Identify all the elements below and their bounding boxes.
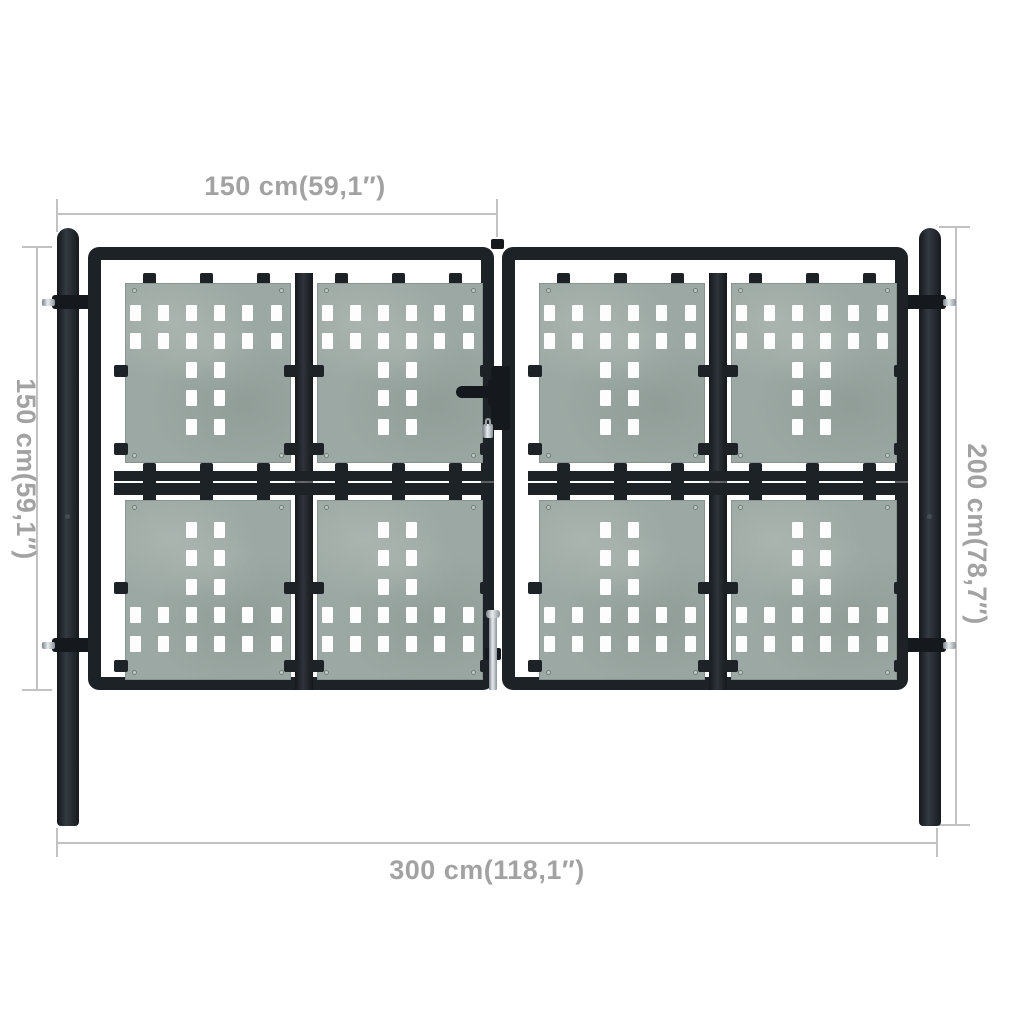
panel-clip-right	[480, 443, 494, 455]
perforation-hole	[186, 333, 197, 349]
perforation-hole	[792, 636, 803, 652]
perforation-hole	[186, 305, 197, 321]
dim-bottom-line	[57, 842, 938, 844]
perforation-hole	[628, 362, 639, 378]
panel-clip-left	[528, 582, 542, 594]
right-post-joint-bolt	[927, 514, 932, 519]
perforation-hole	[214, 333, 225, 349]
dim-left-tick-bottom	[22, 689, 52, 691]
perforation-hole	[628, 390, 639, 406]
perforation-hole	[214, 390, 225, 406]
perforation-hole	[214, 362, 225, 378]
perforation-hole	[685, 636, 696, 652]
panel-clip-left	[528, 365, 542, 377]
perforation-hole	[685, 305, 696, 321]
perforation-hole	[186, 362, 197, 378]
panel-clip-middle	[449, 463, 462, 503]
dim-bottom-tick-right	[936, 828, 938, 857]
perforation-hole	[544, 305, 555, 321]
perforation-hole	[186, 636, 197, 652]
perforation-hole	[406, 333, 417, 349]
perforation-hole	[792, 607, 803, 623]
perforation-hole	[600, 550, 611, 566]
perforation-hole	[792, 419, 803, 435]
padlock-shackle	[485, 418, 491, 426]
perforation-hole	[820, 636, 831, 652]
perforation-hole	[544, 333, 555, 349]
hinge-band	[916, 638, 946, 652]
perforated-panel	[731, 283, 897, 463]
panel-clip-left	[310, 660, 324, 672]
panel-clip-middle	[200, 463, 213, 503]
perforation-hole	[158, 305, 169, 321]
panel-clip-middle	[749, 463, 762, 503]
perforation-hole	[271, 636, 282, 652]
hinge-bolt	[943, 642, 956, 649]
perforation-hole	[378, 390, 389, 406]
perforation-hole	[186, 390, 197, 406]
perforation-hole	[820, 362, 831, 378]
perforation-hole	[322, 636, 333, 652]
perforation-hole	[656, 333, 667, 349]
perforation-hole	[271, 333, 282, 349]
perforation-hole	[434, 607, 445, 623]
perforation-hole	[820, 607, 831, 623]
panel-clip-left	[528, 660, 542, 672]
left-post-joint-bolt	[65, 514, 70, 519]
perforation-hole	[736, 305, 747, 321]
perforation-hole	[736, 636, 747, 652]
perforation-hole	[378, 550, 389, 566]
perforation-hole	[158, 607, 169, 623]
perforation-hole	[572, 333, 583, 349]
perforation-hole	[350, 607, 361, 623]
dim-right-tick-bottom	[939, 824, 970, 826]
panel-screw	[279, 288, 284, 293]
panel-clip-right	[698, 365, 712, 377]
perforation-hole	[877, 305, 888, 321]
perforation-hole	[378, 305, 389, 321]
perforation-hole	[820, 550, 831, 566]
perforated-panel	[539, 500, 705, 680]
perforation-hole	[214, 419, 225, 435]
gate-leaf-right	[502, 247, 908, 690]
drop-bolt-rod	[489, 613, 497, 690]
perforation-hole	[242, 636, 253, 652]
panel-clip-right	[284, 443, 298, 455]
dim-bottom-label: 300 cm(118,1″)	[337, 854, 637, 886]
perforation-hole	[628, 333, 639, 349]
panel-clip-middle	[335, 463, 348, 503]
perforation-hole	[600, 362, 611, 378]
perforation-hole	[572, 305, 583, 321]
gate-leaf-left	[88, 247, 494, 690]
panel-screw	[471, 670, 476, 675]
perforation-hole	[271, 305, 282, 321]
perforation-hole	[186, 607, 197, 623]
panel-screw	[738, 288, 743, 293]
perforation-hole	[378, 362, 389, 378]
panel-clip-middle	[806, 463, 819, 503]
left-gate-post	[57, 228, 79, 826]
perforation-hole	[186, 419, 197, 435]
perforation-hole	[628, 522, 639, 538]
panel-clip-right	[894, 365, 908, 377]
perforation-hole	[158, 636, 169, 652]
perforation-hole	[628, 419, 639, 435]
panel-clip-middle	[671, 463, 684, 503]
perforation-hole	[214, 305, 225, 321]
panel-clip-left	[114, 365, 128, 377]
panel-screw	[738, 453, 743, 458]
panel-screw	[471, 505, 476, 510]
perforation-hole	[214, 550, 225, 566]
panel-clip-left	[724, 660, 738, 672]
panel-screw	[693, 288, 698, 293]
perforation-hole	[434, 305, 445, 321]
panel-clip-middle	[392, 463, 405, 503]
perforation-hole	[378, 419, 389, 435]
dim-right-tick-top	[939, 226, 970, 228]
perforation-hole	[600, 607, 611, 623]
panel-clip-left	[724, 365, 738, 377]
perforation-hole	[434, 636, 445, 652]
perforation-hole	[463, 305, 474, 321]
panel-clip-right	[698, 660, 712, 672]
perforation-hole	[628, 305, 639, 321]
panel-screw	[546, 670, 551, 675]
perforation-hole	[736, 607, 747, 623]
panel-clip-left	[528, 443, 542, 455]
perforation-hole	[628, 550, 639, 566]
panel-clip-left	[724, 582, 738, 594]
perforation-hole	[406, 305, 417, 321]
perforation-hole	[764, 333, 775, 349]
drop-bolt-knob	[486, 610, 500, 618]
perforation-hole	[350, 305, 361, 321]
perforation-hole	[322, 607, 333, 623]
perforation-hole	[628, 607, 639, 623]
perforation-hole	[406, 607, 417, 623]
perforation-hole	[406, 362, 417, 378]
perforated-panel	[125, 500, 291, 680]
perforation-hole	[820, 390, 831, 406]
perforation-hole	[406, 636, 417, 652]
top-center-clip	[491, 239, 504, 249]
perforation-hole	[848, 636, 859, 652]
perforation-hole	[764, 305, 775, 321]
perforation-hole	[877, 607, 888, 623]
perforation-hole	[463, 333, 474, 349]
panel-screw	[324, 505, 329, 510]
panel-clip-left	[310, 443, 324, 455]
perforation-hole	[378, 522, 389, 538]
perforation-hole	[130, 607, 141, 623]
perforation-hole	[848, 607, 859, 623]
panel-screw	[132, 670, 137, 675]
perforation-hole	[628, 636, 639, 652]
panel-clip-middle	[143, 463, 156, 503]
perforation-hole	[544, 607, 555, 623]
perforation-hole	[820, 579, 831, 595]
perforated-panel	[317, 283, 483, 463]
perforation-hole	[214, 522, 225, 538]
panel-screw	[885, 288, 890, 293]
perforation-hole	[764, 636, 775, 652]
panel-screw	[546, 505, 551, 510]
hinge-bolt	[943, 299, 956, 306]
dim-top-tick-right	[496, 199, 498, 237]
panel-screw	[693, 505, 698, 510]
dim-right-line	[955, 227, 957, 826]
panel-screw	[885, 505, 890, 510]
panel-clip-right	[698, 582, 712, 594]
panel-screw	[132, 505, 137, 510]
perforation-hole	[406, 522, 417, 538]
perforation-hole	[378, 333, 389, 349]
perforation-hole	[792, 362, 803, 378]
panel-clip-right	[894, 443, 908, 455]
perforation-hole	[572, 607, 583, 623]
perforation-hole	[792, 550, 803, 566]
right-gate-post	[919, 228, 941, 826]
perforation-hole	[378, 579, 389, 595]
panel-screw	[738, 505, 743, 510]
panel-screw	[471, 453, 476, 458]
perforated-panel	[731, 500, 897, 680]
panel-clip-left	[114, 443, 128, 455]
panel-clip-right	[480, 582, 494, 594]
dim-top-line	[57, 213, 497, 215]
perforation-hole	[600, 333, 611, 349]
perforation-hole	[214, 579, 225, 595]
perforation-hole	[406, 579, 417, 595]
dim-top-label: 150 cm(59,1″)	[145, 170, 445, 202]
perforation-hole	[378, 607, 389, 623]
perforation-hole	[130, 636, 141, 652]
perforation-hole	[544, 636, 555, 652]
perforation-hole	[820, 305, 831, 321]
panel-clip-right	[284, 660, 298, 672]
perforation-hole	[685, 333, 696, 349]
panel-clip-right	[698, 443, 712, 455]
perforation-hole	[186, 579, 197, 595]
dim-left-tick-top	[22, 246, 52, 248]
gate-handle	[456, 386, 498, 398]
panel-screw	[885, 670, 890, 675]
perforation-hole	[463, 636, 474, 652]
perforation-hole	[572, 636, 583, 652]
dim-top-tick-left	[56, 199, 58, 232]
panel-screw	[324, 288, 329, 293]
perforation-hole	[600, 579, 611, 595]
perforation-hole	[130, 305, 141, 321]
panel-screw	[324, 453, 329, 458]
perforation-hole	[792, 333, 803, 349]
perforation-hole	[792, 579, 803, 595]
hinge-bolt	[42, 642, 55, 649]
panel-clip-left	[724, 443, 738, 455]
perforation-hole	[158, 333, 169, 349]
perforation-hole	[186, 522, 197, 538]
perforation-hole	[600, 305, 611, 321]
perforation-hole	[656, 607, 667, 623]
perforation-hole	[792, 522, 803, 538]
perforation-hole	[600, 636, 611, 652]
panel-clip-middle	[257, 463, 270, 503]
dim-bottom-tick-left	[56, 828, 58, 857]
panel-screw	[885, 453, 890, 458]
perforation-hole	[792, 305, 803, 321]
perforation-hole	[848, 305, 859, 321]
perforation-hole	[406, 550, 417, 566]
perforation-hole	[600, 390, 611, 406]
perforated-panel	[539, 283, 705, 463]
perforation-hole	[350, 636, 361, 652]
perforation-hole	[736, 333, 747, 349]
perforation-hole	[214, 636, 225, 652]
perforation-hole	[322, 333, 333, 349]
panel-clip-right	[894, 582, 908, 594]
perforation-hole	[271, 607, 282, 623]
perforation-hole	[600, 522, 611, 538]
perforated-panel	[317, 500, 483, 680]
perforation-hole	[434, 333, 445, 349]
perforation-hole	[242, 305, 253, 321]
perforation-hole	[322, 305, 333, 321]
perforation-hole	[877, 636, 888, 652]
leaf-middle-rail	[114, 471, 494, 495]
panel-clip-left	[310, 365, 324, 377]
panel-clip-middle	[863, 463, 876, 503]
perforation-hole	[656, 636, 667, 652]
perforation-hole	[685, 607, 696, 623]
panel-screw	[132, 453, 137, 458]
panel-screw	[324, 670, 329, 675]
perforation-hole	[378, 636, 389, 652]
perforation-hole	[406, 419, 417, 435]
hinge-band	[916, 295, 946, 309]
panel-clip-left	[114, 660, 128, 672]
panel-screw	[738, 670, 743, 675]
panel-clip-right	[284, 582, 298, 594]
dim-right-label: 200 cm(78,7″)	[961, 384, 993, 684]
panel-clip-right	[894, 660, 908, 672]
padlock	[483, 424, 493, 438]
panel-clip-middle	[614, 463, 627, 503]
product-dimension-diagram: 150 cm(59,1″) 150 cm(59,1″) 200 cm(78,7″…	[0, 0, 1024, 1024]
perforation-hole	[600, 419, 611, 435]
perforation-hole	[792, 390, 803, 406]
perforation-hole	[350, 333, 361, 349]
perforation-hole	[130, 333, 141, 349]
perforation-hole	[406, 390, 417, 406]
leaf-middle-rail	[528, 471, 908, 495]
perforation-hole	[820, 333, 831, 349]
panel-screw	[471, 288, 476, 293]
perforation-hole	[656, 305, 667, 321]
perforation-hole	[820, 522, 831, 538]
panel-clip-left	[310, 582, 324, 594]
perforation-hole	[628, 579, 639, 595]
perforation-hole	[877, 333, 888, 349]
panel-screw	[546, 453, 551, 458]
perforation-hole	[214, 607, 225, 623]
dim-left-label: 150 cm(59,1″)	[10, 319, 42, 619]
perforation-hole	[463, 607, 474, 623]
perforation-hole	[242, 333, 253, 349]
panel-screw	[132, 288, 137, 293]
perforated-panel	[125, 283, 291, 463]
panel-screw	[546, 288, 551, 293]
panel-clip-middle	[557, 463, 570, 503]
perforation-hole	[848, 333, 859, 349]
perforation-hole	[186, 550, 197, 566]
panel-clip-right	[284, 365, 298, 377]
panel-clip-left	[114, 582, 128, 594]
perforation-hole	[242, 607, 253, 623]
perforation-hole	[820, 419, 831, 435]
panel-screw	[279, 505, 284, 510]
hinge-bolt	[42, 299, 55, 306]
perforation-hole	[764, 607, 775, 623]
